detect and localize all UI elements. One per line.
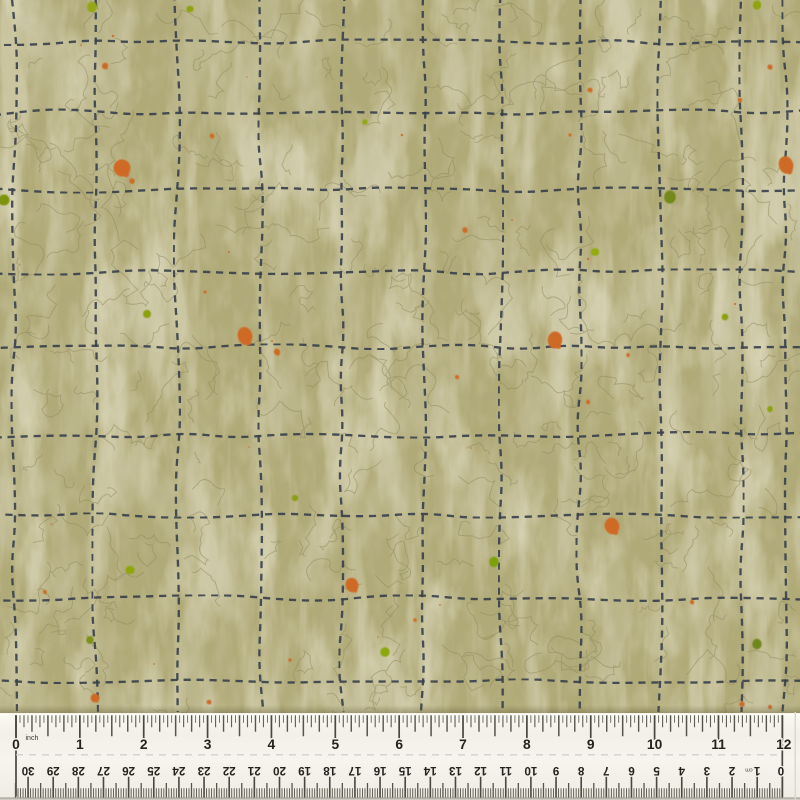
svg-text:20: 20 [273, 764, 286, 777]
svg-text:inch: inch [26, 735, 39, 742]
svg-text:1: 1 [753, 764, 760, 777]
svg-text:17: 17 [348, 764, 361, 777]
svg-text:7: 7 [603, 764, 609, 777]
svg-text:8: 8 [523, 737, 531, 752]
svg-text:11: 11 [711, 737, 726, 752]
svg-text:15: 15 [398, 764, 411, 777]
svg-text:4: 4 [678, 764, 685, 777]
svg-text:21: 21 [247, 764, 260, 777]
svg-text:16: 16 [373, 764, 386, 777]
svg-text:25: 25 [147, 764, 160, 777]
svg-text:7: 7 [459, 737, 467, 752]
svg-text:14: 14 [423, 764, 436, 777]
svg-text:22: 22 [223, 764, 236, 777]
svg-text:2: 2 [729, 764, 735, 777]
svg-text:9: 9 [552, 764, 559, 777]
svg-text:6: 6 [395, 737, 403, 752]
svg-text:0: 0 [12, 737, 20, 752]
svg-text:24: 24 [172, 764, 185, 777]
svg-text:5: 5 [331, 737, 339, 752]
svg-text:9: 9 [587, 737, 595, 752]
svg-text:23: 23 [197, 764, 210, 777]
svg-text:13: 13 [449, 764, 462, 777]
svg-text:27: 27 [97, 764, 110, 777]
svg-text:12: 12 [776, 737, 792, 752]
svg-text:2: 2 [140, 737, 148, 752]
svg-text:3: 3 [204, 737, 212, 752]
svg-text:10: 10 [647, 737, 663, 752]
svg-text:6: 6 [628, 764, 635, 777]
svg-text:28: 28 [71, 764, 84, 777]
svg-text:18: 18 [323, 764, 336, 777]
svg-text:12: 12 [474, 764, 487, 777]
svg-text:8: 8 [577, 764, 584, 777]
svg-text:0: 0 [778, 764, 784, 777]
svg-text:26: 26 [122, 764, 135, 777]
svg-text:19: 19 [298, 764, 311, 777]
svg-text:cm: cm [745, 766, 753, 772]
svg-text:30: 30 [22, 764, 35, 777]
svg-text:4: 4 [268, 737, 276, 752]
svg-text:10: 10 [524, 764, 537, 777]
svg-text:29: 29 [46, 764, 59, 777]
svg-text:5: 5 [653, 764, 660, 777]
svg-text:3: 3 [703, 764, 710, 777]
svg-text:1: 1 [76, 737, 84, 752]
svg-text:11: 11 [499, 764, 512, 777]
